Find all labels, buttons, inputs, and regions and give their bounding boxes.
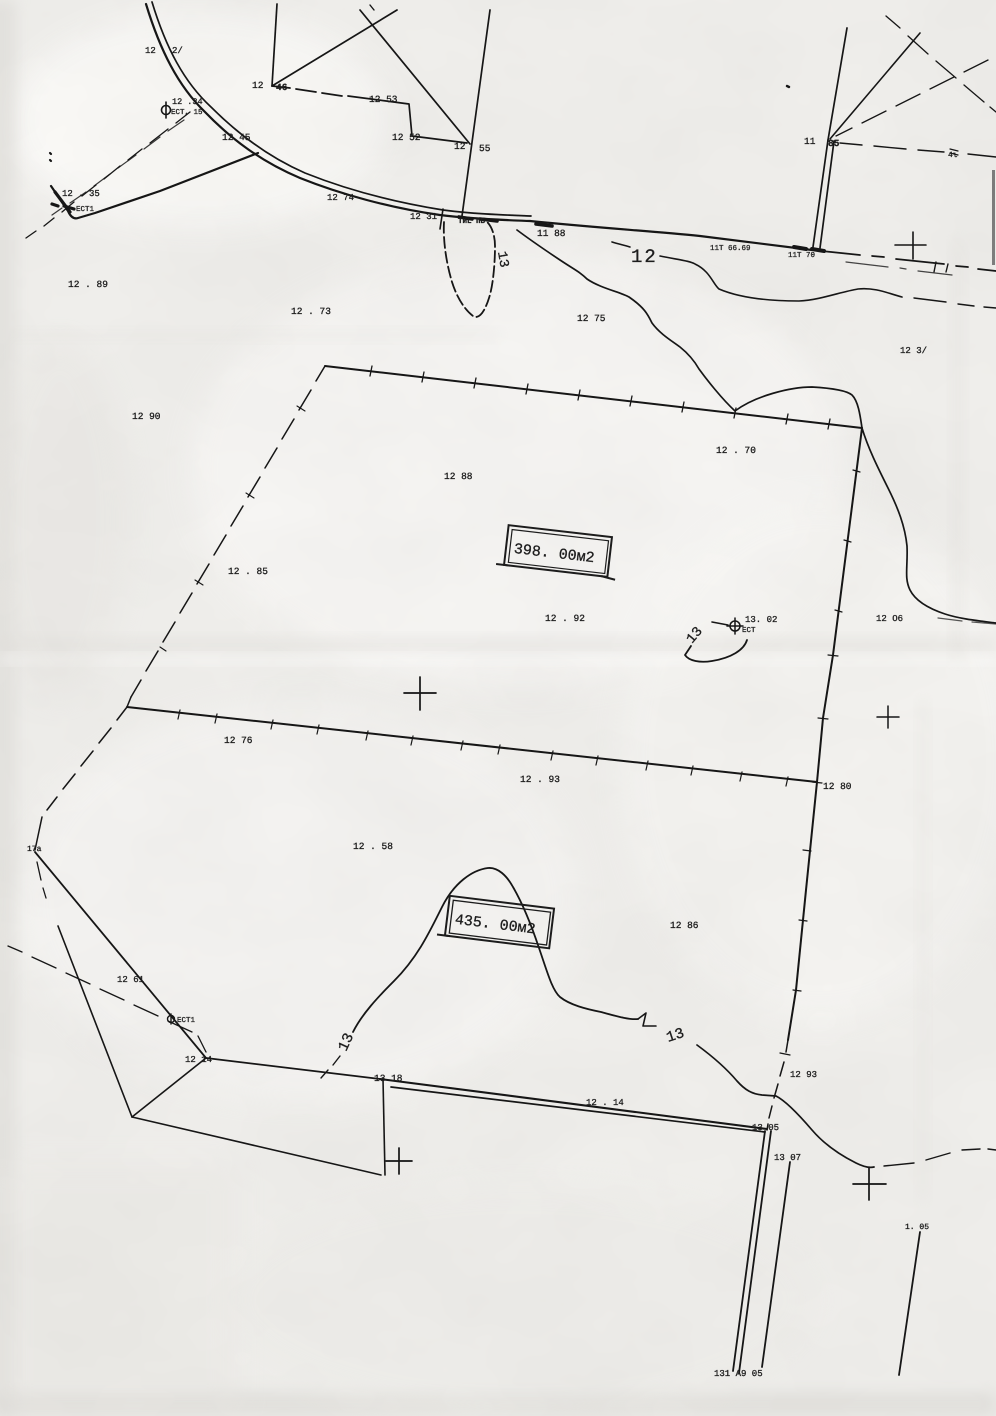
svg-text:13. 02: 13. 02: [745, 615, 777, 625]
svg-text:ТИL ПБ: ТИL ПБ: [458, 218, 486, 226]
svg-text:12: 12: [631, 246, 658, 268]
svg-text:12 75: 12 75: [577, 313, 606, 324]
svg-text:11Т 70: 11Т 70: [788, 251, 816, 260]
svg-text:13 07: 13 07: [774, 1153, 801, 1163]
svg-text:12 . 35: 12 . 35: [62, 189, 100, 199]
svg-text:12 31: 12 31: [410, 212, 437, 222]
svg-text:12 86: 12 86: [670, 920, 699, 931]
svg-text:ЕСТ: ЕСТ: [742, 626, 756, 635]
svg-text:12 . 92: 12 . 92: [545, 613, 585, 624]
svg-text:12 88: 12 88: [444, 471, 473, 482]
svg-text:12 14: 12 14: [185, 1055, 212, 1065]
svg-text:12 53: 12 53: [369, 94, 398, 105]
svg-text:12 . 85: 12 . 85: [228, 566, 268, 577]
svg-text:11: 11: [804, 136, 816, 147]
svg-text:12 О6: 12 О6: [876, 614, 903, 624]
svg-text:12 74: 12 74: [327, 193, 354, 203]
svg-text:12 . 14: 12 . 14: [586, 1098, 624, 1108]
svg-text:11Т 66.69: 11Т 66.69: [710, 244, 751, 253]
svg-text:12 45: 12 45: [222, 132, 251, 143]
svg-text:12 .34: 12 .34: [172, 97, 203, 107]
svg-text:ЕСТ1: ЕСТ1: [76, 205, 95, 214]
svg-text:13 18: 13 18: [374, 1073, 403, 1084]
svg-text:12 . 93: 12 . 93: [520, 774, 560, 785]
svg-text:12 61: 12 61: [117, 975, 144, 985]
svg-text:12 80: 12 80: [823, 781, 852, 792]
svg-text:12 52: 12 52: [392, 132, 421, 143]
svg-text:12 3/: 12 3/: [900, 346, 927, 356]
svg-text:12 . 70: 12 . 70: [716, 445, 756, 456]
svg-text:11 88: 11 88: [537, 228, 566, 239]
svg-text:12 . 89: 12 . 89: [68, 279, 108, 290]
svg-text:12 90: 12 90: [132, 411, 161, 422]
svg-text:12 93: 12 93: [790, 1070, 817, 1080]
svg-text:12 . 2/: 12 . 2/: [145, 46, 183, 56]
svg-text:85: 85: [828, 138, 840, 149]
svg-text:131 А9 05: 131 А9 05: [714, 1369, 763, 1379]
svg-text:ЕСТ1: ЕСТ1: [177, 1016, 196, 1025]
svg-text:17a: 17a: [27, 845, 42, 854]
svg-text:12: 12: [252, 80, 264, 91]
svg-text:12 . 58: 12 . 58: [353, 841, 393, 852]
svg-text:46: 46: [276, 82, 288, 93]
svg-text:13 05: 13 05: [752, 1123, 779, 1133]
svg-text:4ι: 4ι: [948, 151, 958, 160]
svg-text:12 76: 12 76: [224, 735, 253, 746]
svg-text:1. 05: 1. 05: [905, 1223, 929, 1232]
svg-text:13: 13: [493, 250, 511, 269]
svg-text:12: 12: [454, 141, 466, 152]
svg-text:12 . 73: 12 . 73: [291, 306, 331, 317]
svg-text:55: 55: [479, 143, 491, 154]
svg-text:ЕСТ, 15: ЕСТ, 15: [171, 108, 203, 117]
